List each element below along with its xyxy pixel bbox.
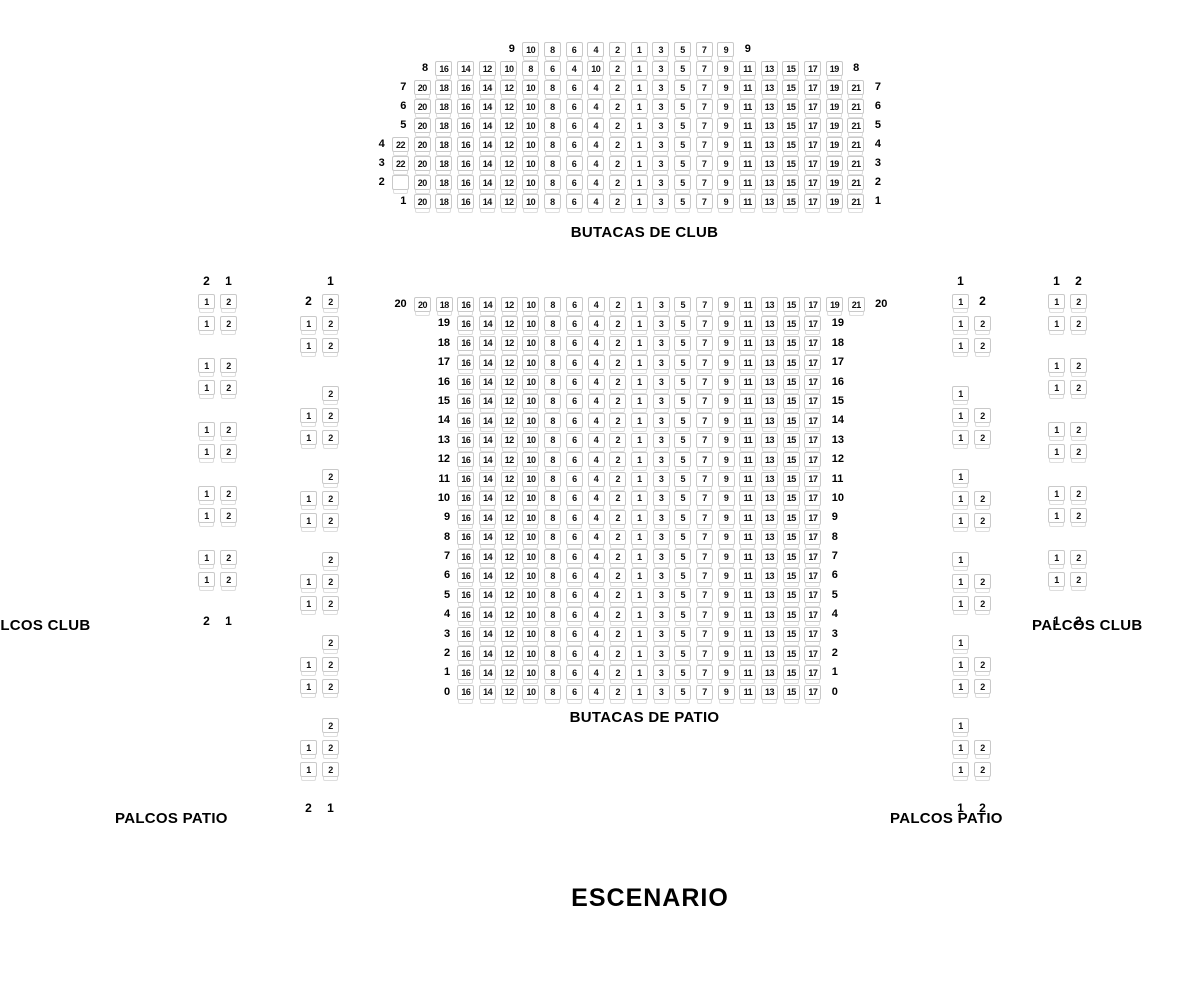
seat[interactable]: 9 <box>717 99 734 118</box>
seat[interactable]: 12 <box>501 549 518 568</box>
seat[interactable]: 3 <box>653 452 670 471</box>
seat[interactable]: 2 <box>609 433 626 452</box>
seat[interactable]: 2 <box>609 665 626 684</box>
seat[interactable]: 11 <box>739 394 756 413</box>
seat[interactable]: 9 <box>718 510 735 529</box>
seat[interactable]: 10 <box>522 568 539 587</box>
seat[interactable]: 15 <box>783 375 800 394</box>
seat[interactable]: 1 <box>198 422 215 441</box>
seat[interactable]: 8 <box>544 42 561 61</box>
seat[interactable]: 2 <box>974 491 991 510</box>
seat[interactable]: 11 <box>739 665 756 684</box>
seat[interactable]: 6 <box>566 510 583 529</box>
seat[interactable]: 3 <box>653 510 670 529</box>
seat[interactable]: 2 <box>609 491 626 510</box>
seat[interactable]: 2 <box>322 552 339 571</box>
seat[interactable]: 17 <box>804 665 821 684</box>
seat[interactable]: 19 <box>826 156 843 175</box>
seat[interactable]: 20 <box>414 99 431 118</box>
seat[interactable]: 9 <box>718 297 735 316</box>
seat[interactable]: 14 <box>479 433 496 452</box>
seat[interactable]: 3 <box>653 394 670 413</box>
seat[interactable]: 2 <box>609 568 626 587</box>
seat[interactable]: 2 <box>322 316 339 335</box>
seat[interactable]: 2 <box>609 452 626 471</box>
seat[interactable]: 6 <box>566 156 583 175</box>
seat[interactable]: 16 <box>457 607 474 626</box>
seat[interactable]: 6 <box>566 472 583 491</box>
seat[interactable]: 5 <box>674 61 691 80</box>
seat[interactable]: 4 <box>588 413 605 432</box>
seat[interactable]: 8 <box>544 607 561 626</box>
seat[interactable]: 5 <box>674 137 691 156</box>
seat[interactable]: 20 <box>414 194 431 213</box>
seat[interactable]: 3 <box>653 530 670 549</box>
seat[interactable]: 15 <box>783 413 800 432</box>
seat[interactable]: 1 <box>631 472 648 491</box>
seat[interactable]: 10 <box>522 646 539 665</box>
seat[interactable]: 7 <box>696 510 713 529</box>
seat[interactable]: 13 <box>761 297 778 316</box>
seat[interactable]: 13 <box>761 646 778 665</box>
seat[interactable]: 8 <box>544 530 561 549</box>
seat[interactable]: 13 <box>761 627 778 646</box>
seat[interactable]: 6 <box>566 413 583 432</box>
seat[interactable]: 18 <box>435 118 452 137</box>
seat[interactable]: 10 <box>522 118 539 137</box>
seat[interactable]: 7 <box>696 156 713 175</box>
seat[interactable]: 10 <box>522 375 539 394</box>
seat[interactable]: 7 <box>696 42 713 61</box>
seat[interactable]: 3 <box>652 137 669 156</box>
seat[interactable]: 2 <box>609 99 626 118</box>
seat[interactable]: 11 <box>739 336 756 355</box>
seat[interactable]: 3 <box>652 156 669 175</box>
seat[interactable]: 17 <box>804 375 821 394</box>
seat[interactable]: 10 <box>522 297 539 316</box>
seat[interactable]: 5 <box>674 80 691 99</box>
seat[interactable]: 7 <box>696 194 713 213</box>
seat[interactable]: 9 <box>717 194 734 213</box>
seat[interactable]: 6 <box>566 194 583 213</box>
seat[interactable]: 11 <box>739 413 756 432</box>
seat[interactable]: 17 <box>804 156 821 175</box>
seat[interactable]: 11 <box>739 118 756 137</box>
seat[interactable]: 2 <box>322 430 339 449</box>
seat[interactable]: 17 <box>804 336 821 355</box>
seat[interactable]: 2 <box>609 316 626 335</box>
seat[interactable]: 12 <box>501 530 518 549</box>
seat[interactable]: 15 <box>782 99 799 118</box>
seat[interactable]: 16 <box>457 685 474 704</box>
seat[interactable]: 20 <box>414 175 431 194</box>
seat[interactable]: 2 <box>322 657 339 676</box>
seat[interactable]: 9 <box>717 156 734 175</box>
seat[interactable]: 16 <box>457 452 474 471</box>
seat[interactable]: 4 <box>587 99 604 118</box>
seat[interactable]: 6 <box>566 549 583 568</box>
seat[interactable]: 1 <box>952 762 969 781</box>
seat[interactable]: 6 <box>566 336 583 355</box>
seat[interactable]: 2 <box>974 338 991 357</box>
seat[interactable]: 7 <box>696 549 713 568</box>
seat[interactable]: 11 <box>739 452 756 471</box>
seat[interactable]: 8 <box>544 685 561 704</box>
seat[interactable]: 3 <box>652 80 669 99</box>
seat[interactable]: 15 <box>783 568 800 587</box>
seat[interactable]: 10 <box>522 685 539 704</box>
seat[interactable]: 8 <box>544 156 561 175</box>
seat[interactable]: 2 <box>974 762 991 781</box>
seat[interactable]: 2 <box>974 574 991 593</box>
seat[interactable]: 2 <box>1070 508 1087 527</box>
seat[interactable]: 6 <box>566 646 583 665</box>
seat[interactable]: 4 <box>588 297 605 316</box>
seat[interactable]: 21 <box>847 80 864 99</box>
seat[interactable]: 1 <box>300 679 317 698</box>
seat[interactable]: 4 <box>588 394 605 413</box>
seat[interactable]: 2 <box>220 486 237 505</box>
seat[interactable]: 2 <box>1070 358 1087 377</box>
seat[interactable]: 1 <box>631 61 648 80</box>
seat[interactable]: 12 <box>501 607 518 626</box>
seat[interactable]: 4 <box>588 472 605 491</box>
seat[interactable]: 2 <box>1070 572 1087 591</box>
seat[interactable]: 11 <box>739 175 756 194</box>
seat[interactable]: 6 <box>566 99 583 118</box>
seat[interactable]: 7 <box>696 685 713 704</box>
seat[interactable]: 2 <box>609 588 626 607</box>
seat[interactable]: 18 <box>436 297 453 316</box>
seat[interactable]: 2 <box>609 355 626 374</box>
seat[interactable]: 10 <box>522 627 539 646</box>
seat[interactable]: 6 <box>566 375 583 394</box>
seat[interactable]: 16 <box>457 316 474 335</box>
seat[interactable]: 9 <box>718 316 735 335</box>
seat[interactable]: 1 <box>631 510 648 529</box>
seat[interactable]: 2 <box>322 469 339 488</box>
seat[interactable]: 3 <box>652 61 669 80</box>
seat[interactable]: 6 <box>566 316 583 335</box>
seat[interactable]: 15 <box>783 510 800 529</box>
seat[interactable]: 14 <box>479 549 496 568</box>
seat[interactable]: 10 <box>522 413 539 432</box>
seat[interactable]: 1 <box>631 627 648 646</box>
seat[interactable]: 11 <box>739 316 756 335</box>
seat[interactable]: 12 <box>501 665 518 684</box>
seat[interactable]: 20 <box>414 118 431 137</box>
seat[interactable]: 2 <box>220 572 237 591</box>
seat[interactable]: 4 <box>588 336 605 355</box>
seat[interactable]: 15 <box>783 491 800 510</box>
seat[interactable]: 13 <box>761 433 778 452</box>
seat[interactable]: 9 <box>717 137 734 156</box>
seat[interactable]: 2 <box>609 80 626 99</box>
seat[interactable]: 13 <box>761 137 778 156</box>
seat[interactable]: 12 <box>501 646 518 665</box>
seat[interactable]: 4 <box>566 61 583 80</box>
seat[interactable]: 21 <box>847 137 864 156</box>
seat[interactable]: 2 <box>974 316 991 335</box>
seat[interactable]: 5 <box>674 175 691 194</box>
seat[interactable]: 3 <box>653 491 670 510</box>
seat[interactable]: 4 <box>588 627 605 646</box>
seat[interactable]: 11 <box>739 530 756 549</box>
seat[interactable]: 17 <box>804 510 821 529</box>
seat[interactable]: 12 <box>501 375 518 394</box>
seat[interactable]: 8 <box>544 413 561 432</box>
seat[interactable]: 17 <box>804 530 821 549</box>
seat[interactable]: 2 <box>609 685 626 704</box>
seat[interactable]: 17 <box>804 194 821 213</box>
seat[interactable]: 16 <box>457 665 474 684</box>
seat[interactable]: 5 <box>674 665 691 684</box>
seat[interactable]: 2 <box>609 472 626 491</box>
seat[interactable]: 12 <box>501 627 518 646</box>
seat[interactable]: 12 <box>500 175 517 194</box>
seat[interactable]: 5 <box>674 375 691 394</box>
seat[interactable]: 2 <box>322 513 339 532</box>
seat[interactable]: 1 <box>198 550 215 569</box>
seat[interactable]: 12 <box>500 99 517 118</box>
seat[interactable]: 6 <box>566 137 583 156</box>
seat[interactable]: 3 <box>653 433 670 452</box>
seat[interactable]: 1 <box>1048 486 1065 505</box>
seat[interactable]: 8 <box>544 118 561 137</box>
seat[interactable]: 1 <box>952 740 969 759</box>
seat[interactable]: 7 <box>696 137 713 156</box>
seat[interactable]: 14 <box>479 685 496 704</box>
seat[interactable]: 14 <box>479 375 496 394</box>
seat[interactable]: 19 <box>826 137 843 156</box>
seat[interactable]: 21 <box>847 175 864 194</box>
seat[interactable]: 16 <box>457 568 474 587</box>
seat[interactable]: 7 <box>696 646 713 665</box>
seat[interactable]: 4 <box>588 685 605 704</box>
seat[interactable]: 4 <box>587 194 604 213</box>
seat[interactable]: 11 <box>739 61 756 80</box>
seat[interactable]: 16 <box>457 118 474 137</box>
seat[interactable]: 12 <box>501 394 518 413</box>
seat[interactable]: 1 <box>952 386 969 405</box>
seat[interactable]: 5 <box>674 42 691 61</box>
seat[interactable]: 2 <box>322 294 339 313</box>
seat[interactable]: 10 <box>522 355 539 374</box>
seat[interactable]: 16 <box>457 175 474 194</box>
seat[interactable]: 5 <box>674 355 691 374</box>
seat[interactable]: 12 <box>501 491 518 510</box>
seat[interactable]: 1 <box>952 513 969 532</box>
seat[interactable]: 15 <box>783 665 800 684</box>
seat[interactable]: 1 <box>631 665 648 684</box>
seat[interactable]: 1 <box>198 572 215 591</box>
seat[interactable]: 13 <box>761 375 778 394</box>
seat[interactable]: 19 <box>826 194 843 213</box>
seat[interactable]: 6 <box>566 355 583 374</box>
seat[interactable]: 1 <box>631 355 648 374</box>
seat[interactable]: 9 <box>718 665 735 684</box>
seat[interactable]: 1 <box>631 194 648 213</box>
seat[interactable]: 22 <box>392 137 409 156</box>
seat[interactable]: 9 <box>718 355 735 374</box>
seat[interactable]: 8 <box>544 665 561 684</box>
seat[interactable]: 1 <box>1048 294 1065 313</box>
seat[interactable]: 2 <box>609 375 626 394</box>
seat[interactable]: 13 <box>761 61 778 80</box>
seat[interactable]: 11 <box>739 156 756 175</box>
seat[interactable]: 1 <box>631 568 648 587</box>
seat[interactable]: 7 <box>696 99 713 118</box>
seat[interactable]: 6 <box>566 42 583 61</box>
seat[interactable]: 17 <box>804 627 821 646</box>
seat[interactable]: 8 <box>544 394 561 413</box>
seat[interactable]: 17 <box>804 137 821 156</box>
seat[interactable]: 2 <box>322 596 339 615</box>
seat[interactable]: 7 <box>696 336 713 355</box>
seat[interactable]: 14 <box>479 394 496 413</box>
seat[interactable]: 4 <box>588 530 605 549</box>
seat[interactable]: 12 <box>501 568 518 587</box>
seat[interactable]: 9 <box>717 118 734 137</box>
seat[interactable]: 13 <box>761 607 778 626</box>
seat[interactable]: 14 <box>479 413 496 432</box>
seat[interactable]: 1 <box>631 491 648 510</box>
seat[interactable]: 1 <box>300 762 317 781</box>
seat[interactable]: 2 <box>322 574 339 593</box>
seat[interactable]: 10 <box>522 394 539 413</box>
seat[interactable]: 2 <box>609 42 626 61</box>
seat[interactable]: 1 <box>631 175 648 194</box>
seat[interactable]: 2 <box>1070 422 1087 441</box>
seat[interactable]: 1 <box>631 394 648 413</box>
seat[interactable]: 2 <box>609 394 626 413</box>
seat[interactable]: 13 <box>761 336 778 355</box>
seat[interactable]: 3 <box>652 42 669 61</box>
seat[interactable]: 2 <box>220 380 237 399</box>
seat[interactable]: 8 <box>544 80 561 99</box>
seat[interactable]: 17 <box>804 549 821 568</box>
seat[interactable]: 4 <box>588 510 605 529</box>
seat[interactable]: 2 <box>322 338 339 357</box>
seat[interactable]: 1 <box>952 316 969 335</box>
seat[interactable]: 2 <box>974 408 991 427</box>
seat[interactable]: 2 <box>609 137 626 156</box>
seat[interactable]: 7 <box>696 61 713 80</box>
seat[interactable]: 8 <box>544 627 561 646</box>
seat[interactable]: 7 <box>696 568 713 587</box>
seat[interactable]: 8 <box>544 452 561 471</box>
seat[interactable]: 14 <box>479 316 496 335</box>
seat[interactable]: 11 <box>739 568 756 587</box>
seat[interactable]: 1 <box>300 491 317 510</box>
seat[interactable]: 1 <box>631 375 648 394</box>
seat[interactable]: 1 <box>631 99 648 118</box>
seat[interactable]: 5 <box>674 156 691 175</box>
seat[interactable]: 15 <box>782 61 799 80</box>
seat[interactable]: 2 <box>322 679 339 698</box>
seat[interactable]: 4 <box>588 549 605 568</box>
seat[interactable]: 12 <box>501 472 518 491</box>
seat[interactable]: 18 <box>435 156 452 175</box>
seat[interactable]: 1 <box>1048 316 1065 335</box>
seat[interactable]: 9 <box>718 646 735 665</box>
seat[interactable]: 17 <box>804 568 821 587</box>
seat[interactable]: 14 <box>479 99 496 118</box>
seat[interactable]: 2 <box>220 422 237 441</box>
seat[interactable]: 14 <box>457 61 474 80</box>
seat[interactable]: 1 <box>952 338 969 357</box>
seat[interactable]: 1 <box>631 316 648 335</box>
seat[interactable]: 16 <box>457 549 474 568</box>
seat[interactable]: 8 <box>544 491 561 510</box>
seat[interactable]: 16 <box>457 491 474 510</box>
seat[interactable]: 8 <box>544 568 561 587</box>
seat[interactable]: 14 <box>479 472 496 491</box>
seat[interactable]: 1 <box>1048 550 1065 569</box>
seat[interactable]: 1 <box>1048 422 1065 441</box>
seat[interactable]: 15 <box>782 156 799 175</box>
seat[interactable]: 1 <box>300 574 317 593</box>
seat[interactable]: 2 <box>220 444 237 463</box>
seat[interactable]: 9 <box>718 627 735 646</box>
seat[interactable]: 11 <box>739 194 756 213</box>
seat[interactable]: 6 <box>566 588 583 607</box>
seat[interactable]: 7 <box>696 665 713 684</box>
seat[interactable]: 11 <box>739 375 756 394</box>
seat[interactable]: 11 <box>739 685 756 704</box>
seat[interactable]: 12 <box>501 413 518 432</box>
seat[interactable]: 2 <box>609 530 626 549</box>
seat[interactable]: 17 <box>804 394 821 413</box>
seat[interactable]: 3 <box>653 413 670 432</box>
seat[interactable]: 2 <box>1070 550 1087 569</box>
seat[interactable]: 12 <box>501 336 518 355</box>
seat[interactable]: 1 <box>631 530 648 549</box>
seat[interactable]: 15 <box>783 472 800 491</box>
seat[interactable]: 18 <box>435 194 452 213</box>
seat[interactable]: 9 <box>718 394 735 413</box>
seat[interactable]: 6 <box>566 118 583 137</box>
seat[interactable]: 10 <box>522 99 539 118</box>
seat[interactable]: 1 <box>631 685 648 704</box>
seat[interactable]: 7 <box>696 413 713 432</box>
seat[interactable]: 17 <box>804 685 821 704</box>
seat[interactable]: 9 <box>718 588 735 607</box>
seat[interactable]: 7 <box>696 588 713 607</box>
seat[interactable]: 11 <box>739 355 756 374</box>
seat[interactable]: 1 <box>198 486 215 505</box>
seat[interactable]: 16 <box>457 336 474 355</box>
seat[interactable]: 14 <box>479 530 496 549</box>
seat[interactable]: 14 <box>479 665 496 684</box>
seat[interactable]: 1 <box>952 469 969 488</box>
seat[interactable]: 2 <box>220 550 237 569</box>
seat[interactable]: 1 <box>631 413 648 432</box>
seat[interactable]: 21 <box>847 156 864 175</box>
seat[interactable]: 4 <box>588 452 605 471</box>
seat[interactable]: 6 <box>566 491 583 510</box>
seat[interactable]: 17 <box>804 61 821 80</box>
seat[interactable]: 11 <box>739 80 756 99</box>
seat[interactable]: 15 <box>783 336 800 355</box>
seat[interactable]: 1 <box>198 316 215 335</box>
seat[interactable]: 5 <box>674 336 691 355</box>
seat[interactable]: 21 <box>848 297 865 316</box>
seat[interactable]: 3 <box>653 627 670 646</box>
seat[interactable]: 12 <box>501 297 518 316</box>
seat[interactable]: 7 <box>696 433 713 452</box>
seat[interactable]: 8 <box>544 588 561 607</box>
